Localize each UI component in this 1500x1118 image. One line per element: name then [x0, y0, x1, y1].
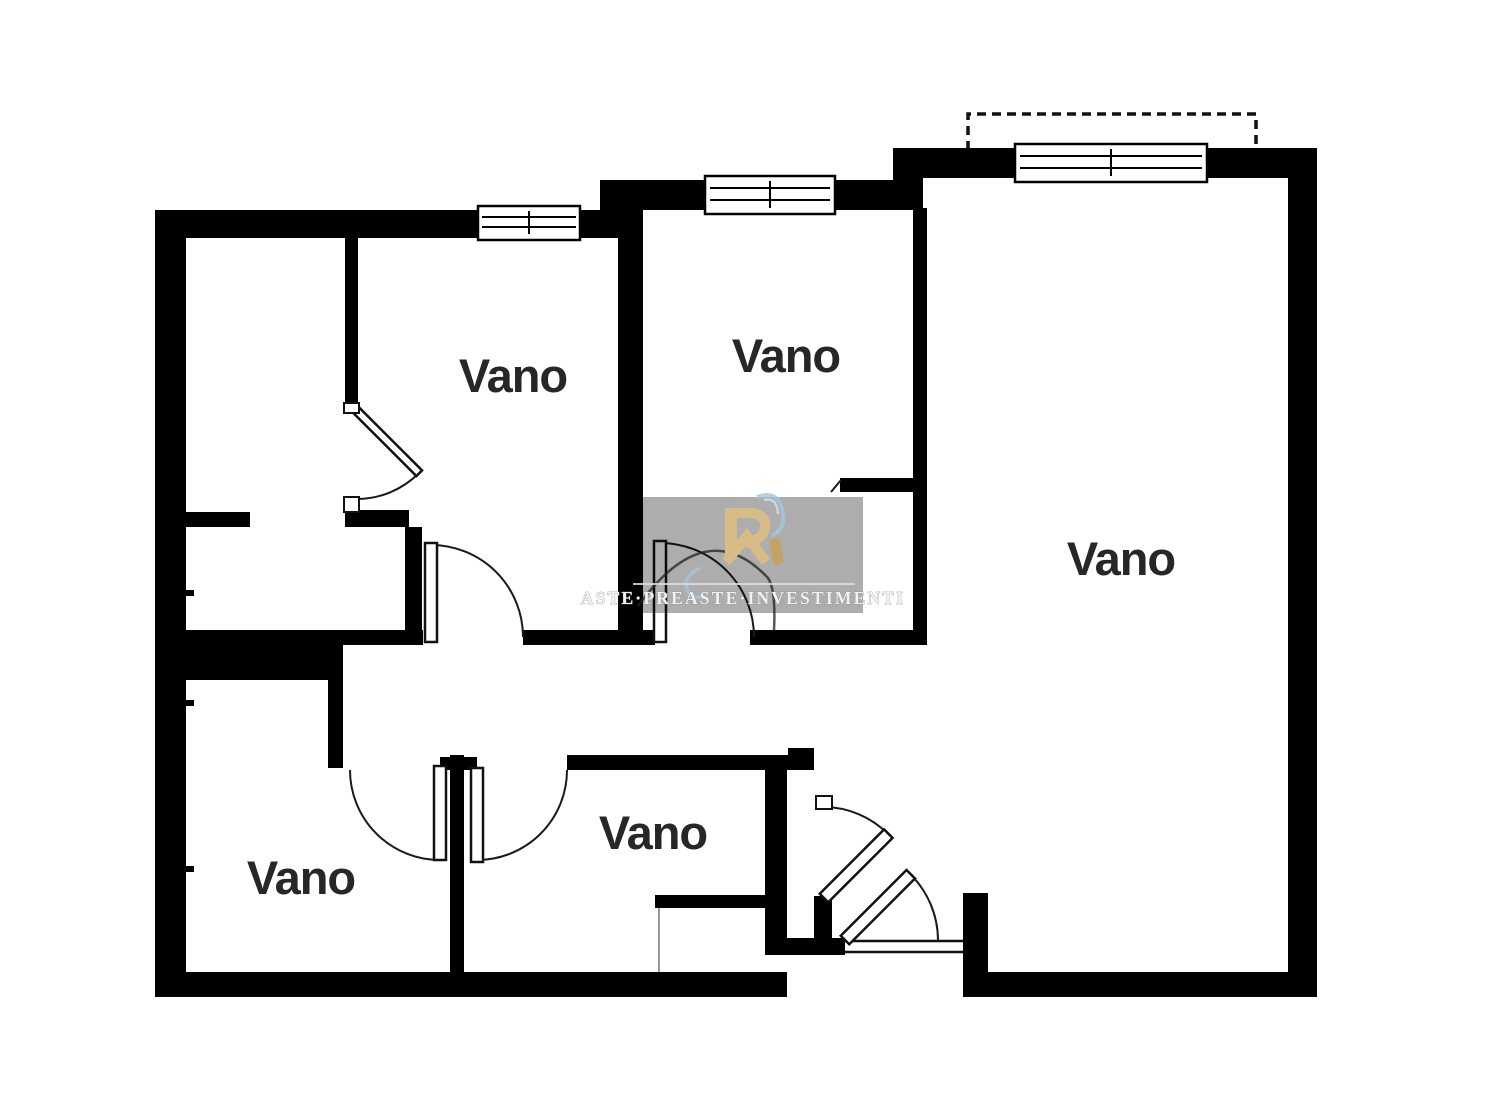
wall [155, 972, 787, 997]
door-leaf [841, 870, 915, 944]
wall-tick [186, 700, 194, 706]
door-leaf [434, 766, 446, 860]
door-swing-arc [477, 770, 567, 860]
wall-tick [186, 590, 194, 596]
wall [913, 208, 927, 643]
wall [405, 527, 422, 632]
wall [328, 642, 343, 768]
room-labels-layer: Vano Vano Vano Vano Vano [247, 329, 1175, 904]
floorplan-drawing: Vano Vano Vano Vano Vano ASTE·PREASTE·IN… [0, 0, 1500, 1118]
door-symbol [350, 766, 446, 860]
door-symbol [471, 768, 567, 862]
wall [765, 760, 787, 955]
entry-threshold [845, 941, 963, 952]
door-leaf [820, 829, 893, 902]
watermark-text: ASTE·PREASTE·INVESTIMENTI [581, 588, 905, 608]
wall [450, 755, 464, 997]
room-label: Vano [1067, 532, 1175, 585]
wall [985, 972, 1316, 997]
wall [1288, 148, 1317, 997]
wall [155, 210, 485, 238]
floorplan-page: Vano Vano Vano Vano Vano ASTE·PREASTE·IN… [0, 0, 1500, 1118]
room-label: Vano [247, 851, 355, 904]
door-swing-arc [431, 545, 523, 637]
wall-tick [186, 866, 194, 872]
window-symbol [705, 176, 835, 214]
wall [900, 148, 1018, 178]
door-swing-arc [910, 874, 938, 940]
room-label: Vano [459, 349, 567, 402]
window-symbol [478, 206, 580, 240]
door-frame [344, 403, 359, 413]
door-swing-arc [824, 807, 888, 834]
wall [765, 938, 845, 955]
window-symbol [1015, 144, 1207, 182]
door-leaf [425, 543, 437, 642]
room-label: Vano [599, 806, 707, 859]
wall [177, 512, 250, 527]
door-swing-arc [357, 473, 419, 499]
door-frame [344, 497, 359, 512]
wall [163, 642, 338, 680]
door-symbol [816, 796, 893, 902]
door-frame [816, 796, 832, 809]
door-leaf [354, 408, 422, 476]
door-swing-arc [350, 770, 440, 860]
door-symbol [425, 543, 523, 642]
wall [567, 755, 790, 770]
wall [655, 895, 775, 908]
wall [615, 180, 707, 210]
wall [155, 210, 186, 997]
door-symbol [841, 870, 938, 944]
wall [750, 630, 927, 645]
door-leaf [471, 768, 483, 862]
wall [840, 478, 916, 492]
room-label: Vano [732, 329, 840, 382]
wall [963, 893, 988, 997]
stub-tick [831, 480, 841, 492]
door-symbol [344, 403, 422, 512]
wall [788, 748, 814, 770]
wall [345, 237, 358, 407]
